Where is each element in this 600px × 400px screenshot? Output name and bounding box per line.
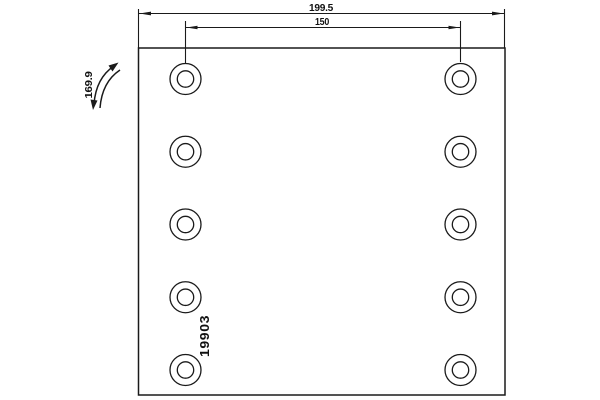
- arrowhead-left-icon: [187, 26, 198, 30]
- mounting-hole-inner: [177, 289, 193, 305]
- mounting-hole-outer: [445, 136, 476, 167]
- curvature-radius-label: 169.9: [84, 71, 95, 99]
- mounting-hole-inner: [452, 362, 468, 378]
- arrowhead-right-icon: [492, 12, 504, 16]
- technical-drawing: 199.5 150 169.9 19903: [0, 0, 600, 400]
- dimension-hole-pitch-label: 150: [315, 17, 330, 28]
- dimension-hole-pitch: 150: [186, 17, 461, 63]
- mounting-hole-inner: [177, 362, 193, 378]
- curvature-arrow-top-icon: [109, 63, 119, 72]
- mounting-hole-outer: [170, 209, 201, 240]
- mounting-hole-outer: [170, 136, 201, 167]
- mounting-hole-inner: [177, 144, 193, 160]
- drawing-canvas: 199.5 150 169.9 19903: [0, 0, 600, 400]
- part-number: 19903: [198, 315, 212, 357]
- curvature-arc-outer: [94, 66, 114, 104]
- mounting-hole-outer: [445, 355, 476, 386]
- mounting-hole-outer: [445, 282, 476, 313]
- mounting-hole-inner: [452, 216, 468, 232]
- dimension-total-width-label: 199.5: [309, 2, 333, 14]
- mounting-hole-outer: [445, 209, 476, 240]
- arrowhead-right-icon: [449, 26, 460, 30]
- curvature-symbol: 169.9: [84, 63, 120, 111]
- mounting-hole-outer: [170, 282, 201, 313]
- mounting-hole-inner: [452, 144, 468, 160]
- mounting-hole-inner: [177, 71, 193, 87]
- mounting-hole-inner: [452, 289, 468, 305]
- mounting-hole-inner: [177, 216, 193, 232]
- mounting-hole-outer: [445, 64, 476, 95]
- mounting-hole-outer: [170, 64, 201, 95]
- mounting-hole-inner: [452, 71, 468, 87]
- mounting-hole-outer: [170, 355, 201, 386]
- mounting-holes: [170, 64, 476, 386]
- curvature-arrow-bottom-icon: [91, 100, 98, 111]
- arrowhead-left-icon: [140, 12, 152, 16]
